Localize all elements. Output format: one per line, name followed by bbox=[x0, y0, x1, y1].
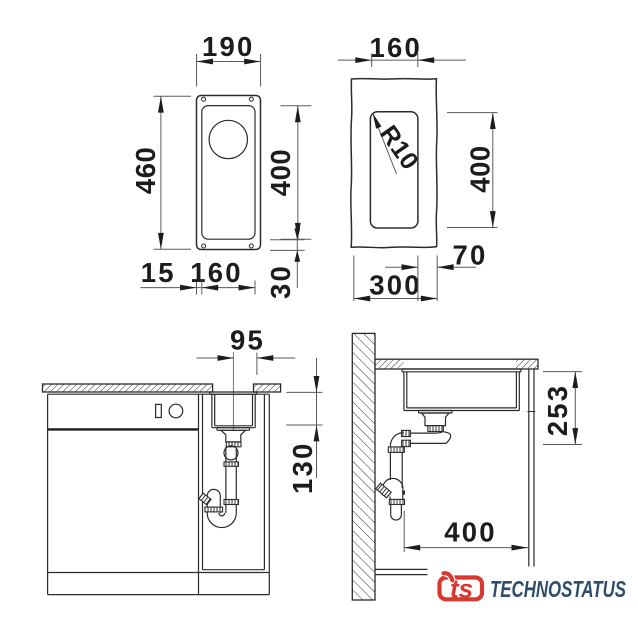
svg-text:300: 300 bbox=[369, 269, 421, 300]
svg-text:160: 160 bbox=[190, 257, 242, 288]
svg-text:160: 160 bbox=[370, 32, 422, 63]
svg-text:TECHNOSTATUS: TECHNOSTATUS bbox=[490, 576, 626, 602]
svg-text:15: 15 bbox=[141, 257, 176, 288]
svg-text:400: 400 bbox=[444, 516, 496, 547]
svg-text:130: 130 bbox=[287, 442, 318, 494]
svg-text:400: 400 bbox=[464, 145, 495, 192]
svg-text:70: 70 bbox=[453, 240, 488, 271]
svg-text:190: 190 bbox=[202, 31, 254, 62]
svg-text:400: 400 bbox=[265, 149, 296, 196]
svg-text:95: 95 bbox=[230, 324, 265, 355]
svg-text:460: 460 bbox=[130, 147, 161, 194]
svg-text:253: 253 bbox=[542, 384, 573, 436]
svg-text:30: 30 bbox=[265, 264, 296, 299]
